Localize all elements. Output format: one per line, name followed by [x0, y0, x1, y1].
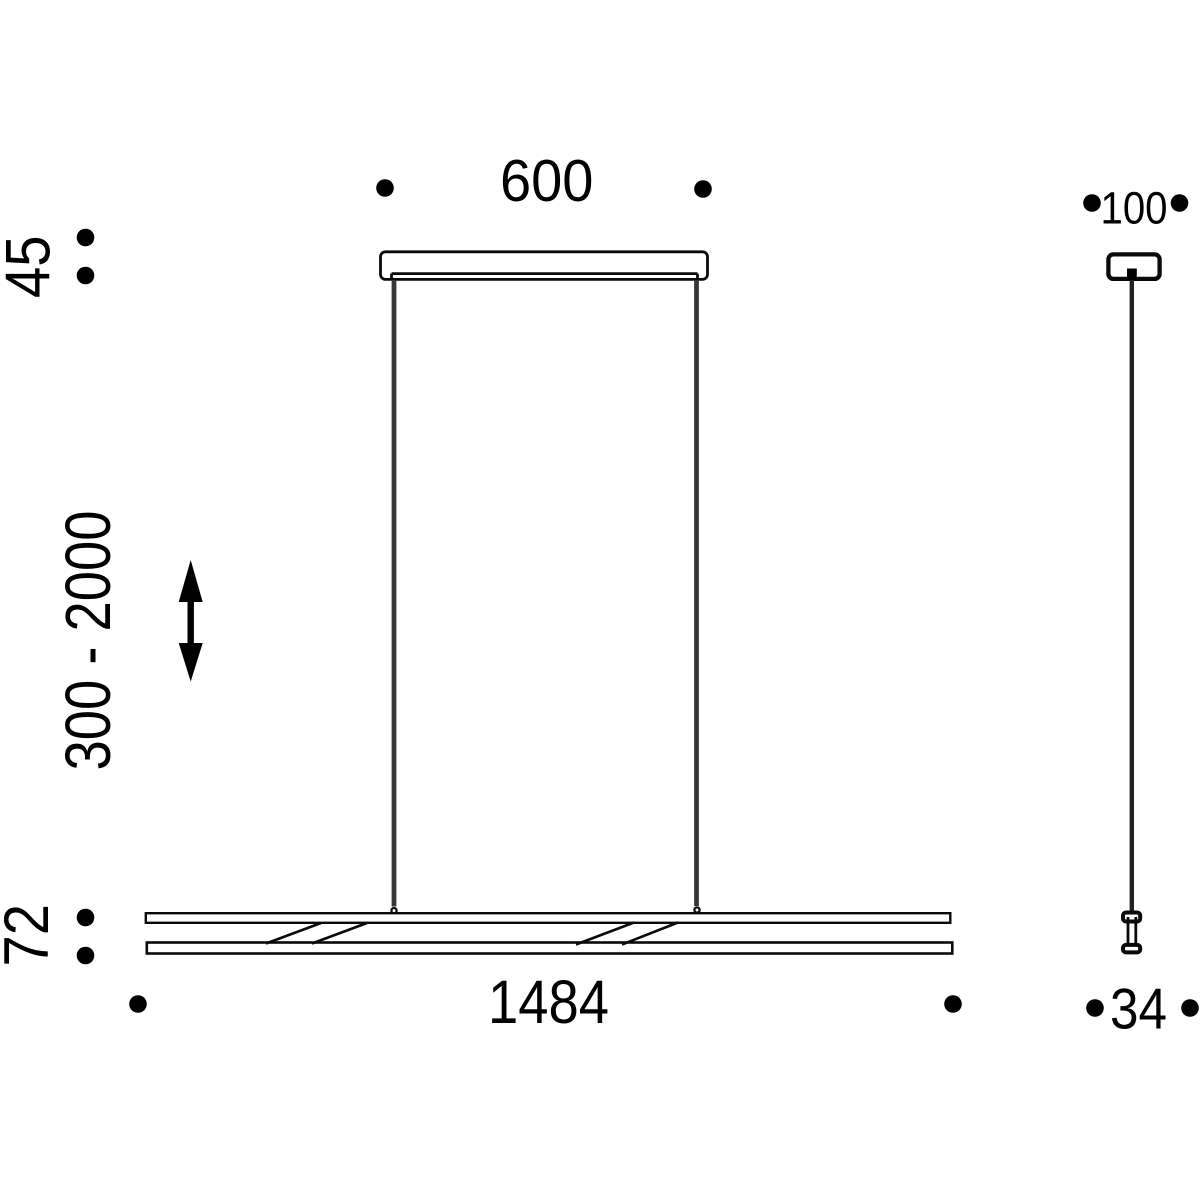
svg-text:600: 600: [500, 148, 594, 214]
svg-text:100: 100: [1101, 183, 1168, 234]
svg-text:300 - 2000: 300 - 2000: [52, 511, 124, 771]
svg-text:45: 45: [0, 236, 64, 298]
svg-text:72: 72: [0, 904, 62, 967]
svg-text:1484: 1484: [488, 968, 609, 1036]
svg-text:34: 34: [1110, 977, 1167, 1041]
